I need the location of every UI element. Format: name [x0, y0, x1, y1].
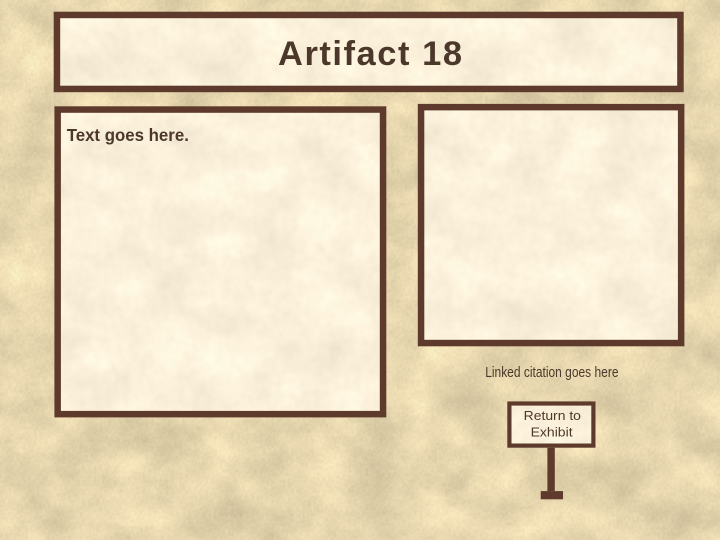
svg-text:Artifact 18: Artifact 18: [278, 35, 462, 73]
svg-text:Exhibit: Exhibit: [531, 425, 574, 439]
svg-text:Linked citation goes here: Linked citation goes here: [485, 364, 618, 381]
svg-text:Return to: Return to: [524, 409, 581, 423]
svg-text:Text goes here.: Text goes here.: [67, 125, 189, 145]
